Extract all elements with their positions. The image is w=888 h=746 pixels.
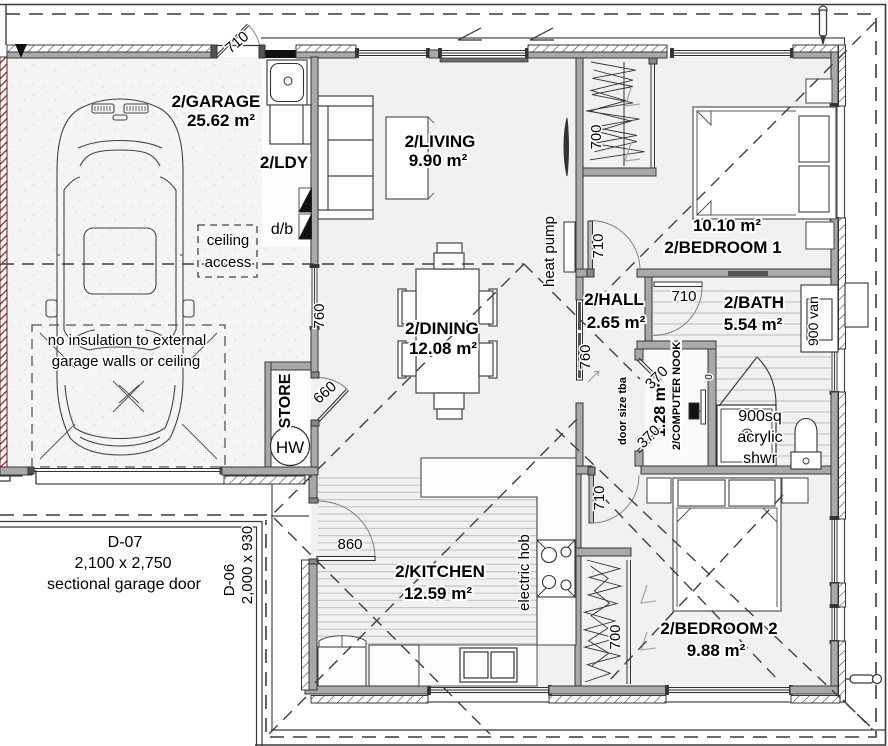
svg-text:900sq: 900sq xyxy=(738,408,782,425)
svg-text:2.65 m²: 2.65 m² xyxy=(587,313,646,332)
svg-text:860: 860 xyxy=(337,536,362,553)
svg-text:0: 0 xyxy=(704,374,715,380)
svg-text:2,000 x 930: 2,000 x 930 xyxy=(239,526,256,604)
svg-text:access: access xyxy=(205,254,252,271)
svg-text:STORE: STORE xyxy=(277,373,294,428)
svg-text:2/COMPUTER NOOK: 2/COMPUTER NOOK xyxy=(671,342,683,450)
svg-text:710: 710 xyxy=(590,233,607,258)
svg-text:electric hob: electric hob xyxy=(516,534,533,611)
svg-text:no insulation to external: no insulation to external xyxy=(48,332,206,349)
svg-text:heat pump: heat pump xyxy=(541,216,558,287)
svg-text:2/BEDROOM 2: 2/BEDROOM 2 xyxy=(660,619,777,638)
svg-text:HW: HW xyxy=(276,438,304,457)
svg-text:D-07: D-07 xyxy=(108,534,143,551)
svg-text:ceiling: ceiling xyxy=(207,232,250,249)
svg-text:25.62 m²: 25.62 m² xyxy=(187,111,255,130)
svg-text:5.54 m²: 5.54 m² xyxy=(724,315,783,334)
svg-text:9.90 m²: 9.90 m² xyxy=(409,151,468,170)
svg-text:2/KITCHEN: 2/KITCHEN xyxy=(395,562,485,581)
svg-text:9.88 m²: 9.88 m² xyxy=(687,641,746,660)
svg-text:garage walls or ceiling: garage walls or ceiling xyxy=(52,353,200,370)
svg-text:2,100 x 2,750: 2,100 x 2,750 xyxy=(75,555,172,572)
svg-text:900 van: 900 van xyxy=(805,296,821,346)
svg-text:d/b: d/b xyxy=(271,221,293,238)
svg-text:710: 710 xyxy=(591,485,608,510)
svg-text:D-06: D-06 xyxy=(221,564,238,597)
svg-text:2/LDY: 2/LDY xyxy=(260,153,309,172)
svg-text:10.10 m²: 10.10 m² xyxy=(693,216,761,235)
svg-text:760: 760 xyxy=(577,344,594,369)
svg-text:door size tba: door size tba xyxy=(617,376,629,445)
svg-text:710: 710 xyxy=(671,288,696,305)
svg-text:2/GARAGE: 2/GARAGE xyxy=(172,92,261,111)
svg-text:acrylic: acrylic xyxy=(737,429,782,446)
svg-text:shwr: shwr xyxy=(743,450,777,467)
svg-text:sectional garage door: sectional garage door xyxy=(47,576,202,593)
svg-text:12.08 m²: 12.08 m² xyxy=(409,339,477,358)
svg-text:700: 700 xyxy=(588,124,605,149)
svg-text:2/BEDROOM 1: 2/BEDROOM 1 xyxy=(664,238,781,257)
svg-text:2/DINING: 2/DINING xyxy=(405,319,479,338)
svg-text:2/HALL: 2/HALL xyxy=(584,290,644,309)
svg-text:12.59 m²: 12.59 m² xyxy=(404,584,472,603)
svg-text:700: 700 xyxy=(607,624,624,649)
svg-text:760: 760 xyxy=(311,303,328,328)
svg-text:2/LIVING: 2/LIVING xyxy=(405,132,476,151)
svg-text:2/BATH: 2/BATH xyxy=(724,293,784,312)
